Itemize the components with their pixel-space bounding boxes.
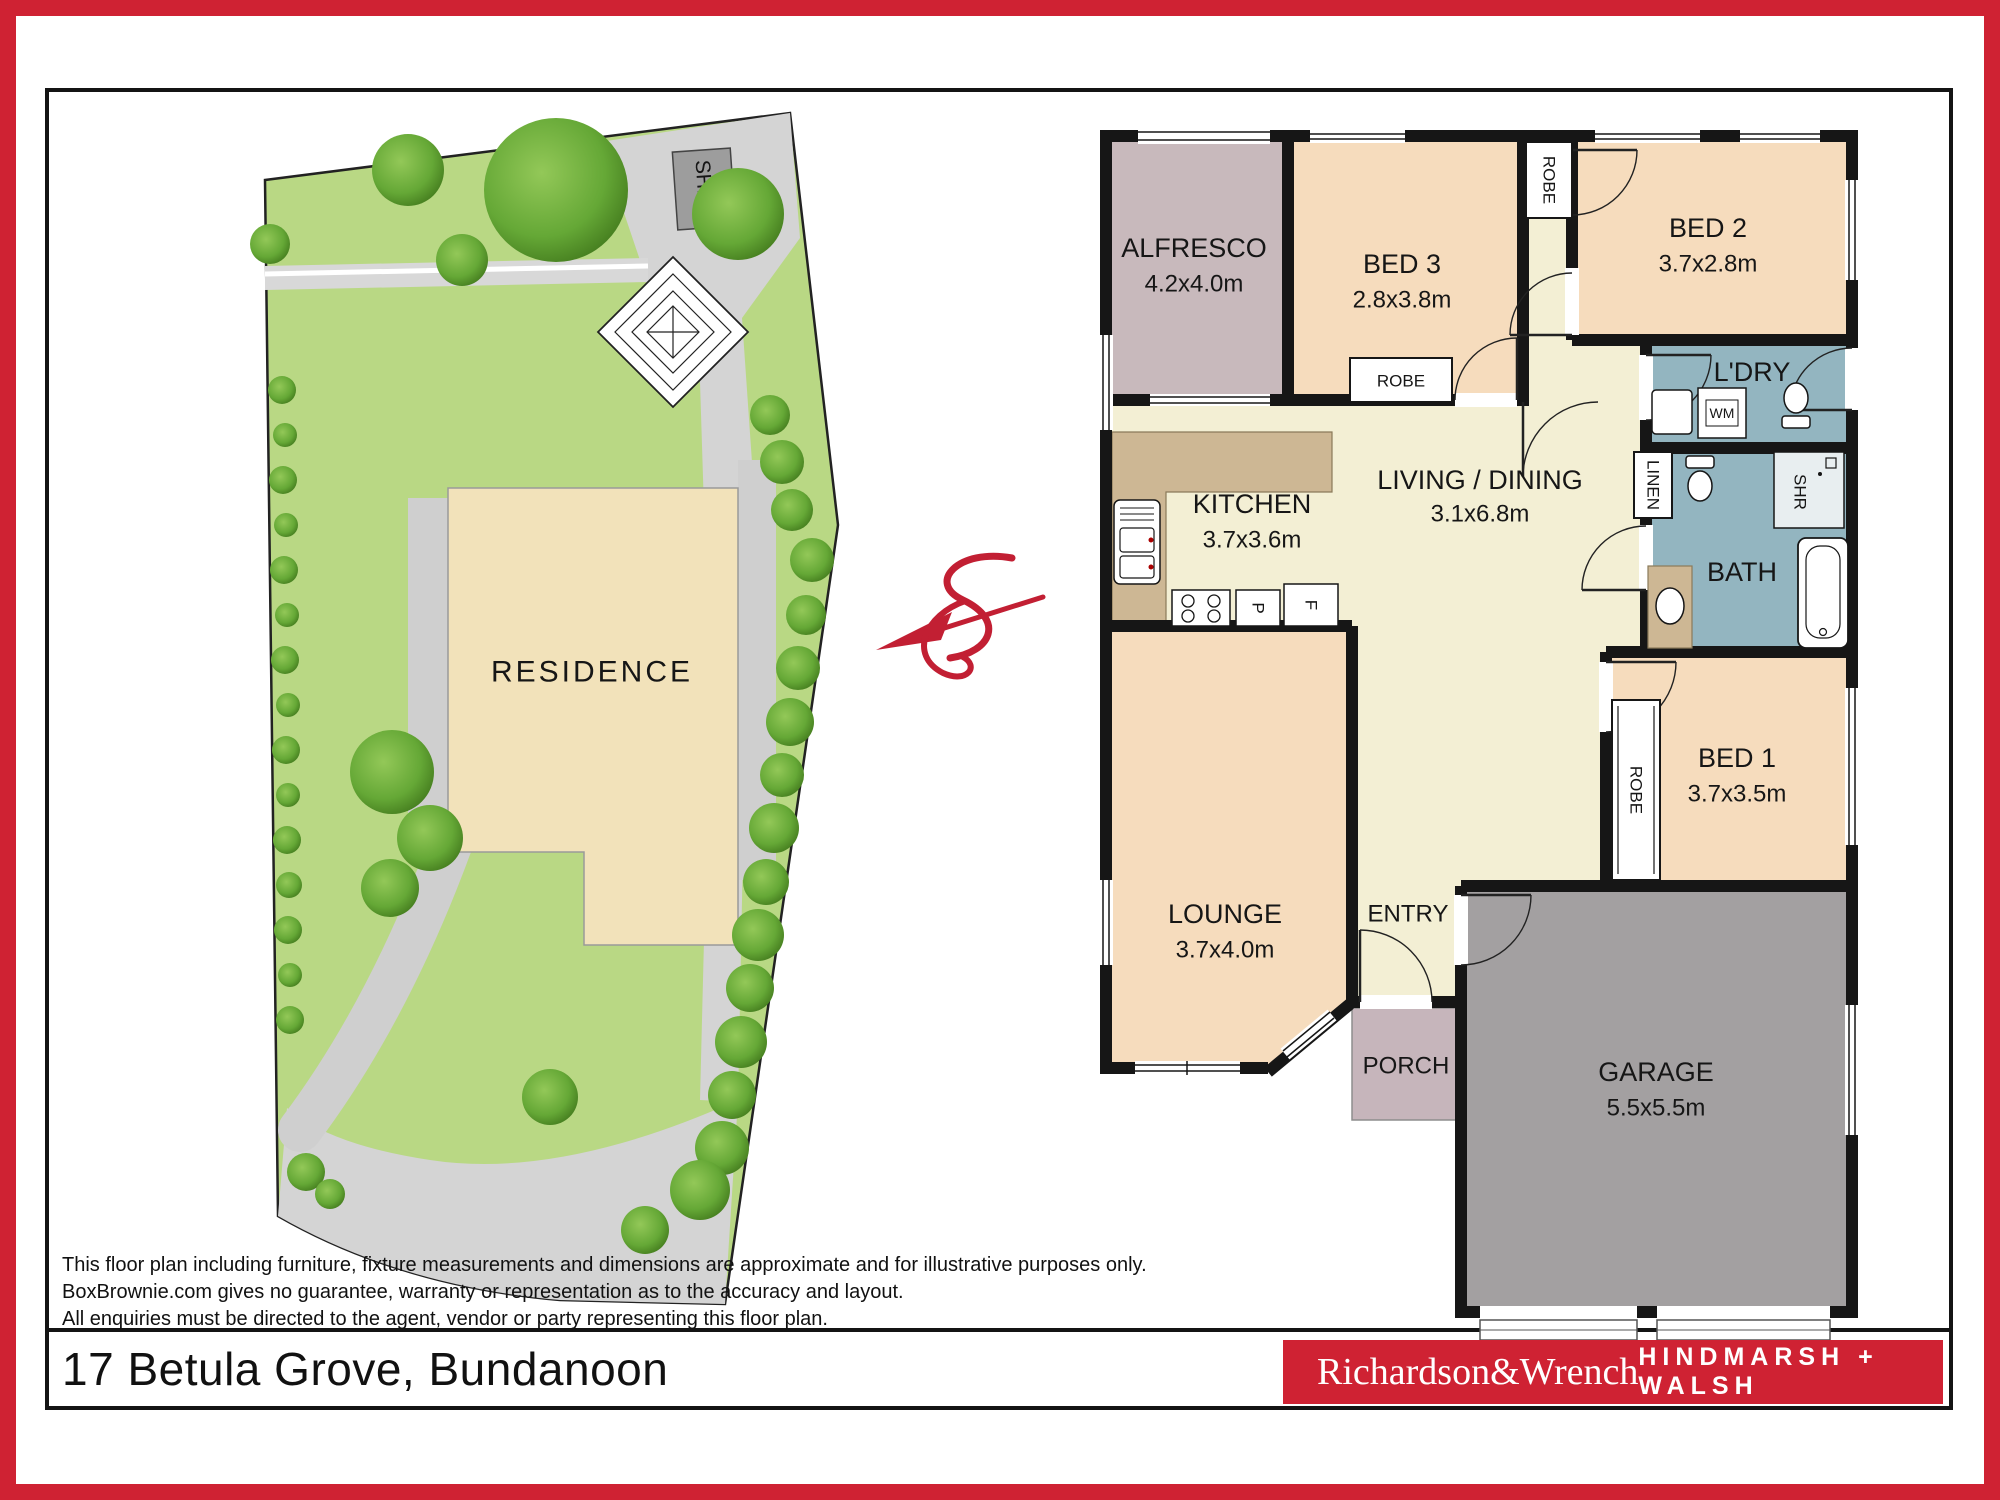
bed3-name: BED 3 bbox=[1363, 249, 1441, 279]
fridge-box: F bbox=[1284, 584, 1338, 626]
agency-logo-bar: Richardson&Wrench HINDMARSH + WALSH bbox=[1283, 1340, 1943, 1404]
residence-label: RESIDENCE bbox=[491, 656, 693, 689]
pantry-label: P bbox=[1249, 602, 1268, 613]
disclaimer-line-2: BoxBrownie.com gives no guarantee, warra… bbox=[62, 1279, 1147, 1306]
kitchen-name: KITCHEN bbox=[1193, 489, 1312, 519]
garage-name: GARAGE bbox=[1598, 1057, 1714, 1087]
entry-name: ENTRY bbox=[1368, 901, 1449, 928]
room-lounge bbox=[1106, 626, 1352, 1068]
page: RESIDENCE SHED bbox=[0, 0, 2000, 1500]
garage-dims: 5.5x5.5m bbox=[1607, 1095, 1706, 1122]
alfresco-dims: 4.2x4.0m bbox=[1145, 271, 1244, 298]
bed2-dims: 3.7x2.8m bbox=[1659, 251, 1758, 278]
shr-label: SHR bbox=[1791, 474, 1810, 510]
kitchen-dims: 3.7x3.6m bbox=[1203, 527, 1302, 554]
pantry-box: P bbox=[1236, 590, 1280, 626]
fridge-label: F bbox=[1302, 600, 1321, 610]
bed2-name: BED 2 bbox=[1669, 213, 1747, 243]
lounge-dims: 3.7x4.0m bbox=[1176, 937, 1275, 964]
robe-bed1-label: ROBE bbox=[1627, 766, 1646, 814]
alfresco-name: ALFRESCO bbox=[1121, 233, 1267, 263]
living-name: LIVING / DINING bbox=[1377, 465, 1583, 495]
robe-bed3-label: ROBE bbox=[1377, 372, 1425, 391]
room-alfresco bbox=[1100, 136, 1288, 400]
floor-plan: P F WM bbox=[1099, 128, 1859, 1340]
north-arrow-icon bbox=[876, 556, 1043, 676]
robe-hall-label: ROBE bbox=[1540, 156, 1559, 204]
hindmarsh-walsh-logo: HINDMARSH + WALSH bbox=[1638, 1343, 1921, 1401]
lounge-name: LOUNGE bbox=[1168, 899, 1282, 929]
vanity-sink-icon bbox=[1656, 588, 1684, 624]
ldry-name: L'DRY bbox=[1714, 357, 1791, 387]
bed3-dims: 2.8x3.8m bbox=[1353, 287, 1452, 314]
kitchen-sink-icon bbox=[1114, 500, 1160, 584]
bath-toilet-icon bbox=[1688, 471, 1712, 501]
richardson-wrench-logo: Richardson&Wrench bbox=[1317, 1350, 1638, 1394]
bed1-dims: 3.7x3.5m bbox=[1688, 781, 1787, 808]
disclaimer-line-1: This floor plan including furniture, fix… bbox=[62, 1252, 1147, 1279]
stove-icon bbox=[1172, 590, 1230, 626]
linen-label: LINEN bbox=[1644, 460, 1663, 510]
bath-name: BATH bbox=[1707, 557, 1777, 587]
site-plan: RESIDENCE SHED bbox=[250, 113, 838, 1304]
porch-name: PORCH bbox=[1363, 1053, 1450, 1080]
property-address: 17 Betula Grove, Bundanoon bbox=[62, 1342, 668, 1396]
wm-label: WM bbox=[1710, 405, 1735, 421]
disclaimer: This floor plan including furniture, fix… bbox=[62, 1252, 1147, 1333]
ldry-toilet-icon bbox=[1784, 383, 1808, 413]
bed1-name: BED 1 bbox=[1698, 743, 1776, 773]
disclaimer-line-3: All enquiries must be directed to the ag… bbox=[62, 1306, 1147, 1333]
living-dims: 3.1x6.8m bbox=[1431, 501, 1530, 528]
